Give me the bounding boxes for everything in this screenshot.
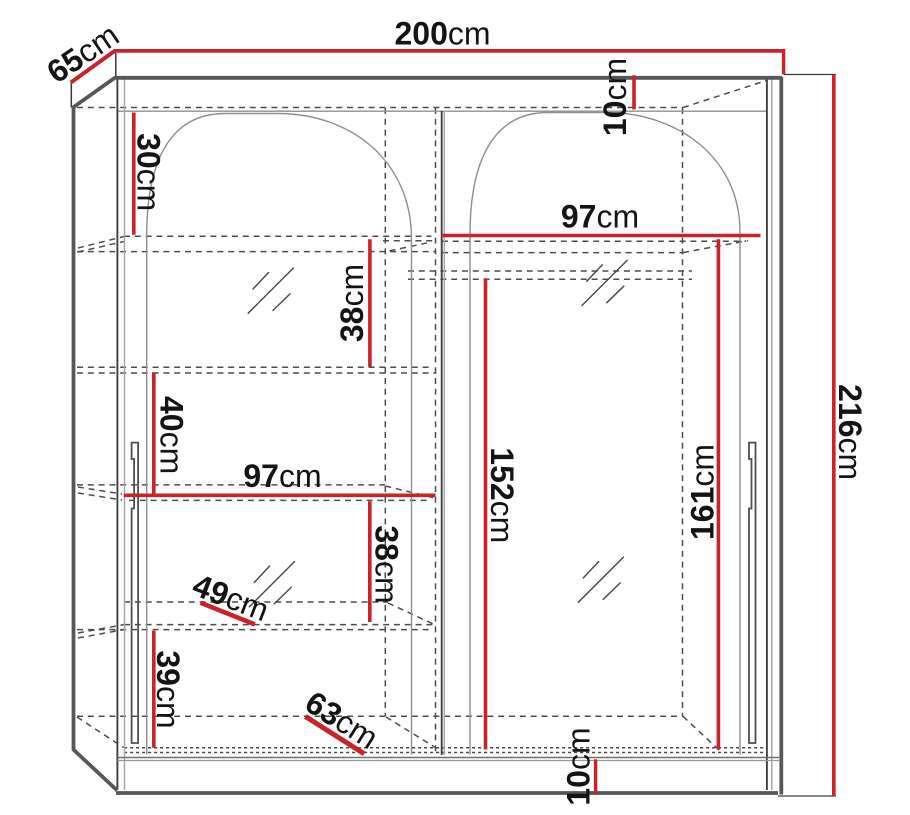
svg-text:200cm: 200cm	[394, 16, 490, 52]
svg-text:38cm: 38cm	[368, 525, 404, 603]
svg-text:97cm: 97cm	[243, 458, 321, 494]
svg-text:152cm: 152cm	[484, 447, 520, 543]
svg-text:30cm: 30cm	[130, 133, 166, 211]
svg-text:38cm: 38cm	[334, 264, 370, 342]
svg-text:161cm: 161cm	[685, 444, 721, 540]
svg-text:39cm: 39cm	[150, 650, 186, 728]
svg-text:10cm: 10cm	[561, 727, 597, 805]
svg-text:216cm: 216cm	[832, 384, 868, 480]
svg-text:40cm: 40cm	[153, 396, 189, 474]
svg-text:10cm: 10cm	[597, 58, 633, 136]
svg-text:97cm: 97cm	[561, 199, 639, 235]
